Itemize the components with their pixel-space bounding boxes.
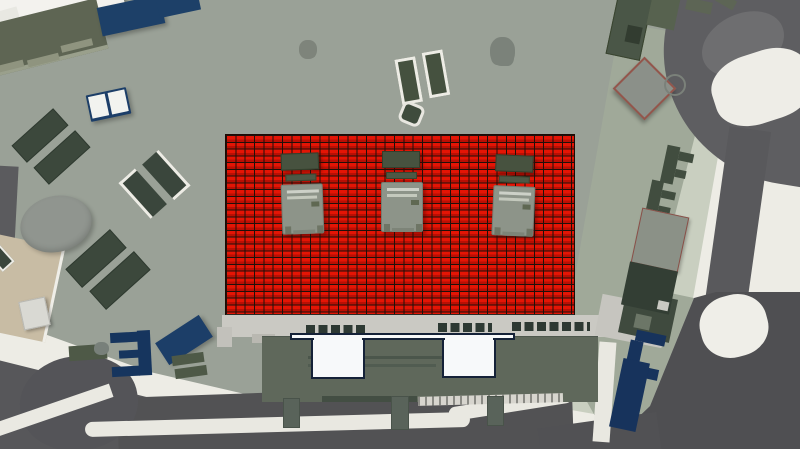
deck-light-square [657, 300, 670, 311]
swirl-circle [664, 74, 686, 96]
stall-machine-1[interactable] [279, 152, 326, 237]
planter-bed [422, 49, 451, 98]
kiosk-dark-inset [624, 25, 642, 45]
shed-square [18, 297, 50, 331]
pingpong-half-left [88, 94, 109, 119]
tree [299, 40, 317, 59]
pillar [391, 396, 409, 430]
stall-foot [526, 229, 532, 237]
stall-machine-2[interactable] [380, 151, 424, 235]
pillar [283, 398, 300, 428]
stall-body-tag [411, 200, 419, 205]
stall-foot [416, 224, 422, 232]
roof-vent-strip [512, 322, 590, 331]
navy-e-arm-top [110, 332, 138, 343]
stall-foot [317, 225, 323, 233]
roof-vent-strip [306, 325, 366, 333]
terrace-segment [60, 38, 93, 53]
stall-awning [382, 151, 420, 168]
scene-canvas [0, 0, 800, 449]
stall-body [491, 185, 535, 237]
footprint-tab-left [311, 339, 365, 379]
pingpong-half-right [108, 89, 129, 114]
stall-body-bar [287, 189, 319, 193]
stall-shelf [285, 173, 316, 181]
footprint-join-patch [314, 337, 362, 343]
stall-body-bar [287, 195, 317, 199]
stall-bumper [293, 230, 315, 235]
stall-body [281, 183, 325, 234]
stall-awning [495, 154, 534, 173]
concrete-column [217, 327, 232, 347]
stall-body-tag [311, 201, 319, 206]
kiosk-bar [660, 145, 681, 185]
stall-foot [384, 224, 390, 232]
footprint-join-patch [445, 337, 493, 343]
dark-block-patch [633, 314, 652, 331]
stall-foot [285, 226, 291, 234]
roof-vent-strip [438, 323, 492, 332]
stall-body-bar [499, 197, 529, 201]
bush-small [94, 342, 109, 355]
planter-h-pair [394, 49, 454, 107]
stall-foot [494, 227, 500, 235]
navy-e-structure [110, 327, 155, 379]
stall-shelf [386, 172, 417, 179]
stall-machine-3[interactable] [490, 154, 538, 240]
stall-bumper [502, 232, 524, 237]
stall-body-tag [522, 204, 530, 209]
tree [490, 37, 515, 66]
stall-body-bar [387, 188, 419, 191]
kiosk-arm [661, 190, 676, 201]
kiosk-arm [674, 169, 686, 179]
stall-shelf [499, 175, 530, 183]
stall-body [381, 182, 423, 232]
navy-e-arm-mid [119, 350, 139, 359]
navy-e-arm-bottom [112, 366, 140, 377]
stall-awning [281, 152, 320, 170]
stall-body-bar [499, 191, 531, 195]
footprint-tab-right [442, 339, 496, 378]
kiosk-arm [678, 151, 695, 163]
pillar [487, 396, 504, 426]
stall-body-bar [387, 194, 417, 197]
stall-bumper [392, 228, 414, 232]
